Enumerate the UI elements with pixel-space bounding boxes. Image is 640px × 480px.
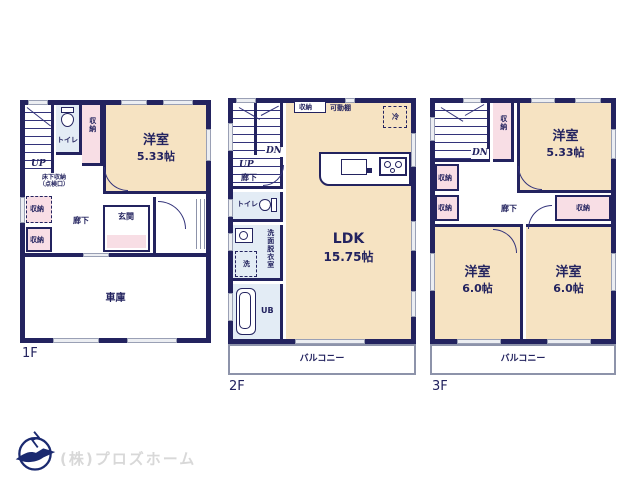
bathtub-inner [239,292,251,329]
toilet-icon [259,199,271,211]
window [20,197,25,223]
storage-3f-left1: 収納 [435,164,459,191]
window [411,291,416,317]
room-name: 洋室6.0帖 [526,265,611,298]
window [430,253,435,291]
toilet-room-1f [56,105,82,155]
toilet-room-2f: トイレ [233,192,283,222]
kitchen-sink-icon [341,159,367,175]
stair-arrow-line [261,106,279,116]
room-name: 洋室5.33帖 [106,133,206,166]
window [575,98,601,103]
burner-icon [384,161,391,168]
window [531,98,555,103]
window [411,221,416,251]
washer-label: 洗 [243,261,250,269]
sink-bowl-icon [239,231,248,240]
room-size: 6.0帖 [553,282,584,295]
entry-door-arc [158,201,186,229]
window [611,129,616,159]
entrance-step [107,235,146,248]
floor-label-3f: 3F [432,379,448,394]
bathtub-icon [236,288,256,335]
room-size: 5.33帖 [137,150,175,163]
stair-arrow-line [27,107,51,126]
movable-shelf-label: 可動棚 [330,105,351,113]
stair-divider [254,103,257,155]
entrance-porch-1f [153,197,206,253]
window [236,98,256,103]
window [228,199,233,217]
window [228,123,233,151]
fridge-label: 冷 [392,114,399,122]
window [127,338,177,343]
window [28,100,48,105]
room-name: 洋室5.33帖 [520,129,611,162]
storage-label: 収納 [438,175,452,183]
room-size: 15.75帖 [324,250,374,264]
storage-1f-dotted: 収納 [26,196,52,223]
company-name: (株)プロズホーム [60,448,196,469]
up-label-2f: UP [239,161,254,171]
window [430,117,435,141]
toilet-icon [271,198,277,212]
window [228,293,233,321]
porch-steps [196,199,197,249]
hallway-label-2f: 廊下 [241,174,257,183]
faucet-icon [366,168,372,173]
garage-wall [25,253,206,257]
entrance-room-1f: 玄関 [103,205,150,252]
storage-3f-closet: 収納 [493,103,514,162]
storage-1f-lower: 収納 [26,227,52,252]
porch-steps [200,199,201,249]
fridge-box: 冷 [383,106,407,128]
floor-plan-3f: DN 収納 洋室5.33帖 収納 収納 廊下 収納 洋室6.0帖 洋室6.0帖 [430,98,616,344]
storage-3f-left2: 収納 [435,195,459,221]
down-label-2f: DN [265,147,283,157]
unit-bath-label: UB [261,307,274,316]
window [345,98,355,103]
ldk-room-2f: LDK15.75帖 収納 可動棚 冷 [286,103,411,339]
stair-arrow-line [441,107,464,122]
stair-arrow-line [465,104,485,116]
balcony-label: バルコニー [432,355,614,365]
underfloor-storage-label: 床下収納（点検口） [39,175,69,188]
western-room-3f-60-left: 洋室6.0帖 [435,224,523,339]
entrance-label: 玄関 [118,213,134,222]
door-arc [493,229,517,253]
window [411,133,416,167]
storage-label: 収納 [299,104,312,111]
company-logo [12,429,58,475]
unit-bath-2f: UB [233,284,283,339]
washroom-label: 洗面脱衣室 [266,229,274,279]
garage-label: 車庫 [25,293,206,304]
toilet-icon [61,113,74,127]
window [206,129,211,161]
room-size: 5.33帖 [546,146,584,159]
burner-icon [395,161,402,168]
toilet-label-1f: トイレ [57,137,78,145]
window [163,100,193,105]
porch-steps [204,199,205,249]
room-name: 洋室6.0帖 [435,265,520,298]
storage-shelf-box: 収納 [294,101,326,113]
storage-label: 収納 [30,206,44,214]
floor-plan-2f: DN UP 廊下 トイレ 洗 洗面脱衣室 UB LDK15.75帖 [228,98,416,344]
bird-logo-icon [12,429,58,475]
storage-label: 収納 [88,117,96,133]
floor-label-1f: 1F [22,346,38,361]
balcony-3f: バルコニー [430,344,616,375]
storage-label: 収納 [499,115,507,131]
washer-box: 洗 [235,251,257,277]
floor-plan-page: UP トイレ 収納 洋室5.33帖 床下収納（点検口） 収納 収納 廊下 [0,0,640,480]
balcony-label: バルコニー [230,355,414,365]
door-arc [104,167,128,191]
floor-label-2f: 2F [229,379,245,394]
washroom-2f: 洗 洗面脱衣室 [233,225,283,281]
window [121,100,147,105]
door-arc [518,166,542,190]
room-size: 6.0帖 [462,282,493,295]
up-label-1f: UP [31,160,46,170]
room-name: LDK15.75帖 [286,231,411,266]
stove-icon [379,157,407,176]
storage-3f-right: 収納 [555,195,611,221]
balcony-2f: バルコニー [228,344,416,375]
hallway-label-1f: 廊下 [73,217,89,226]
storage-label: 収納 [576,205,590,213]
window [83,253,109,257]
western-room-3f-60-right: 洋室6.0帖 [526,224,611,339]
toilet-label-2f: トイレ [237,201,258,209]
burner-icon [390,168,395,173]
window [53,338,99,343]
door-arc [528,205,552,229]
hallway-label-3f: 廊下 [501,205,517,214]
floor-plan-1f: UP トイレ 収納 洋室5.33帖 床下収納（点検口） 収納 収納 廊下 [20,100,211,343]
storage-label: 収納 [30,237,44,245]
down-label-3f: DN [471,149,489,159]
window [228,233,233,251]
western-room-1f: 洋室5.33帖 [103,105,206,194]
western-room-3f-533: 洋室5.33帖 [517,103,611,193]
window [463,98,481,103]
window [611,253,616,291]
storage-label: 収納 [438,205,452,213]
kitchen-counter [319,152,411,186]
storage-1f-closet: 収納 [82,105,103,166]
